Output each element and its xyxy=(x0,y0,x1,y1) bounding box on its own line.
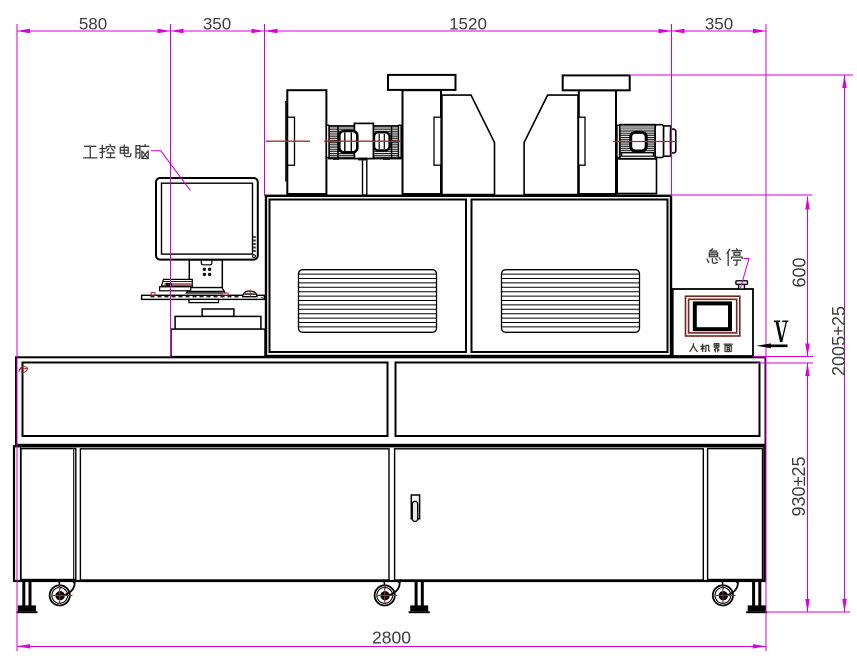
svg-text:600: 600 xyxy=(790,257,810,287)
svg-text:350: 350 xyxy=(203,15,231,34)
svg-text:580: 580 xyxy=(79,15,107,34)
svg-text:930±25: 930±25 xyxy=(789,457,809,517)
svg-text:1520: 1520 xyxy=(449,15,487,34)
svg-text:2800: 2800 xyxy=(372,628,411,648)
svg-text:2005±25: 2005±25 xyxy=(829,306,849,376)
svg-text:350: 350 xyxy=(705,15,733,34)
